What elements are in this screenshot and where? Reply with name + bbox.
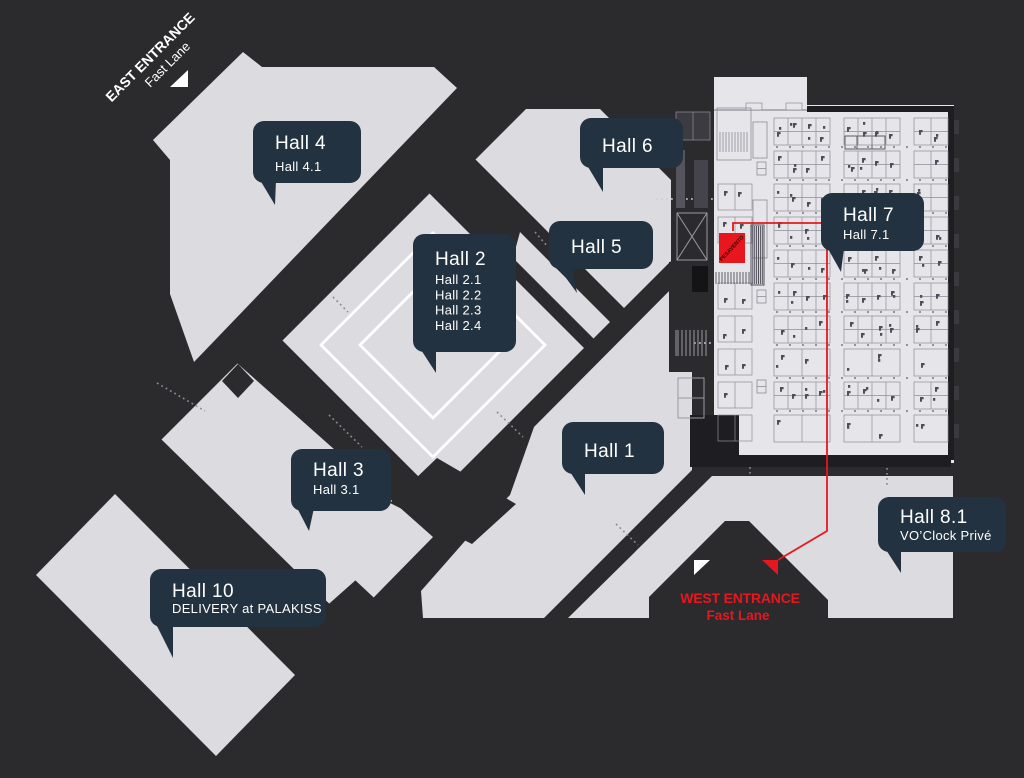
- svg-text:Hall 2.4: Hall 2.4: [435, 318, 481, 333]
- svg-text:Hall 2.3: Hall 2.3: [435, 303, 481, 318]
- svg-text:Hall 7: Hall 7: [843, 205, 894, 226]
- svg-text:Fast Lane: Fast Lane: [706, 608, 770, 623]
- svg-text:DELIVERY at PALAKISS: DELIVERY at PALAKISS: [172, 601, 322, 616]
- svg-text:WEST ENTRANCE: WEST ENTRANCE: [680, 590, 800, 606]
- svg-text:Hall 3: Hall 3: [313, 460, 364, 481]
- svg-text:Hall 2: Hall 2: [435, 249, 486, 270]
- svg-text:Hall 3.1: Hall 3.1: [313, 482, 359, 497]
- svg-text:Hall 4: Hall 4: [275, 133, 326, 154]
- svg-text:Hall 10: Hall 10: [172, 581, 234, 602]
- svg-text:Hall 7.1: Hall 7.1: [843, 227, 889, 242]
- svg-text:Hall 2.2: Hall 2.2: [435, 287, 481, 302]
- svg-text:VO’Clock Privé: VO’Clock Privé: [900, 528, 992, 543]
- svg-text:Hall 8.1: Hall 8.1: [900, 507, 968, 528]
- svg-text:Hall 5: Hall 5: [571, 237, 622, 258]
- svg-text:Hall 4.1: Hall 4.1: [275, 159, 321, 174]
- svg-text:Hall 2.1: Hall 2.1: [435, 272, 481, 287]
- svg-text:Hall 6: Hall 6: [602, 136, 653, 157]
- svg-text:Hall 1: Hall 1: [584, 441, 635, 462]
